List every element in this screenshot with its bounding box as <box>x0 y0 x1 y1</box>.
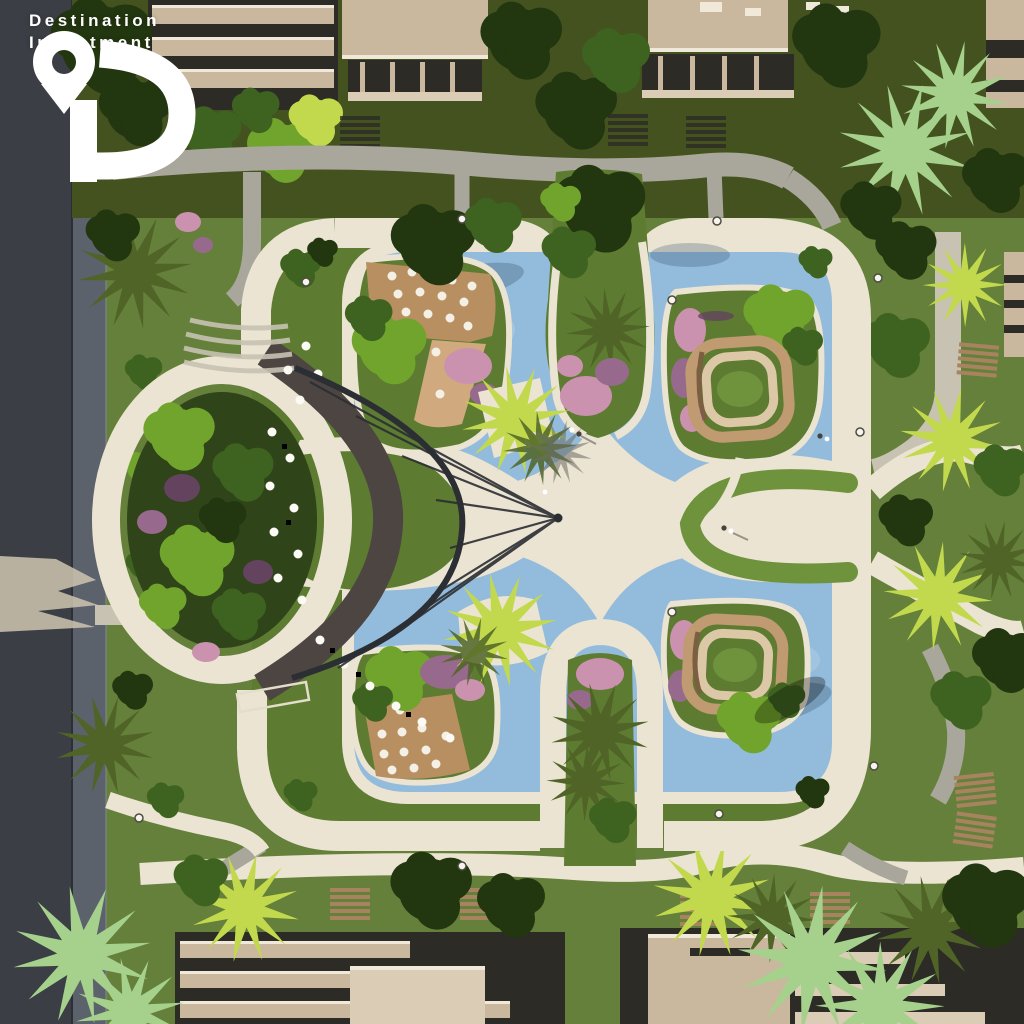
apartment-building <box>642 0 794 98</box>
oval-garden <box>106 370 338 670</box>
apartment-building <box>175 932 565 1024</box>
apartment-building <box>986 0 1024 108</box>
location-pin-d-monogram-icon <box>12 10 202 195</box>
masterplan-render: Destination Investment <box>0 0 1024 1024</box>
apartment-building <box>1004 252 1024 357</box>
south-median <box>532 632 663 866</box>
brand-logo: Destination Investment <box>12 10 212 55</box>
apartment-building <box>342 0 488 101</box>
